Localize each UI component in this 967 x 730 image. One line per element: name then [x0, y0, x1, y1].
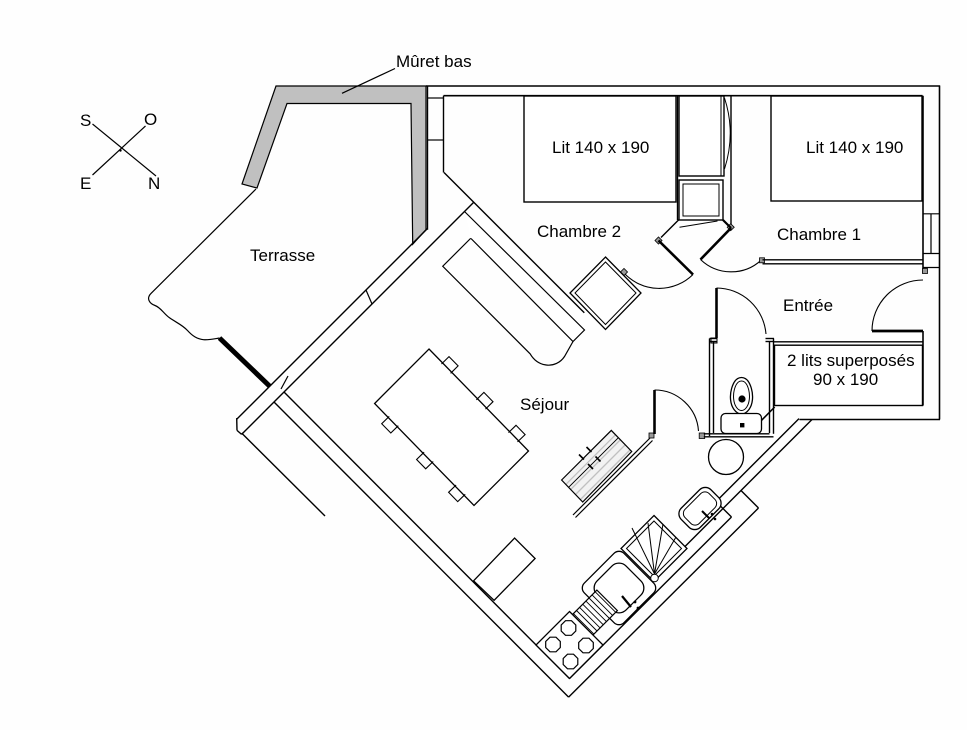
svg-text:Lit 140 x 190: Lit 140 x 190	[552, 138, 649, 157]
svg-text:E: E	[80, 174, 91, 193]
svg-text:90 x 190: 90 x 190	[813, 370, 878, 389]
svg-text:S: S	[80, 111, 91, 130]
svg-text:Entrée: Entrée	[783, 296, 833, 315]
svg-text:O: O	[144, 110, 157, 129]
svg-text:Chambre 1: Chambre 1	[777, 225, 861, 244]
svg-text:Chambre 2: Chambre 2	[537, 222, 621, 241]
svg-text:Terrasse: Terrasse	[250, 246, 315, 265]
svg-text:Séjour: Séjour	[520, 395, 569, 414]
svg-text:Mûret bas: Mûret bas	[396, 52, 472, 71]
svg-text:Lit 140 x 190: Lit 140 x 190	[806, 138, 903, 157]
svg-text:N: N	[148, 174, 160, 193]
svg-text:2 lits superposés: 2 lits superposés	[787, 351, 915, 370]
